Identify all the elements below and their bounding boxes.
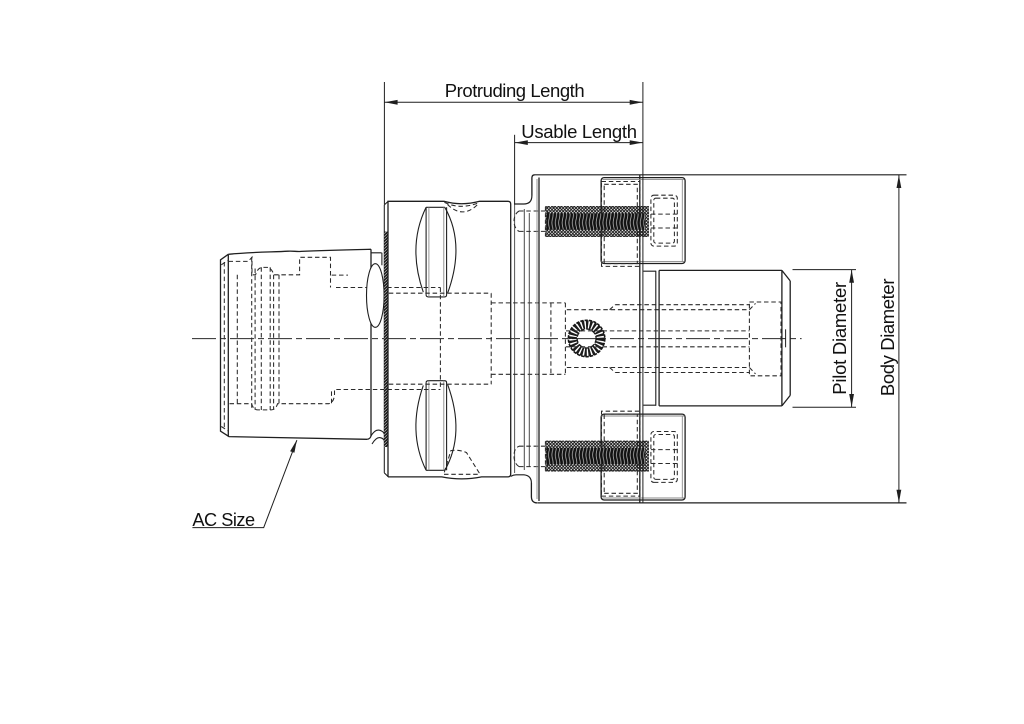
svg-text:Protruding Length: Protruding Length bbox=[445, 80, 585, 101]
svg-text:AC Size: AC Size bbox=[192, 510, 255, 530]
svg-text:Pilot Diameter: Pilot Diameter bbox=[829, 282, 850, 395]
svg-text:Usable Length: Usable Length bbox=[521, 121, 636, 142]
svg-text:Body Diameter: Body Diameter bbox=[877, 279, 898, 396]
